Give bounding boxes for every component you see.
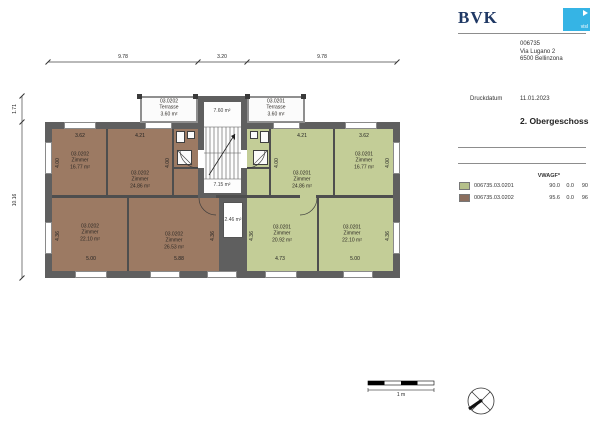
legend-divider-1 xyxy=(458,147,586,148)
badge-arrow-icon xyxy=(583,10,588,16)
window xyxy=(265,271,297,278)
sink-fixture xyxy=(250,131,258,139)
dim-label: 3.62 xyxy=(75,133,85,139)
partition-wall xyxy=(317,198,319,271)
room-area: 22.10 m² xyxy=(80,236,100,242)
door-opening xyxy=(198,150,204,168)
terrace-door xyxy=(273,122,300,129)
room-label-0202-zimmer4: 03.0202 Zimmer 26.53 m² xyxy=(164,232,184,251)
room-unit: 03.0201 xyxy=(293,171,311,177)
partition-wall xyxy=(216,195,247,198)
dim-label: 4.36 xyxy=(210,231,216,241)
room-unit: 03.0201 xyxy=(343,225,361,231)
legend-id: 006735.03.0202 xyxy=(474,195,514,201)
window xyxy=(45,222,52,254)
stair-core-interior xyxy=(204,102,241,193)
dim-label: 9.78 xyxy=(317,54,327,60)
room-area: 26.53 m² xyxy=(164,244,184,250)
window xyxy=(64,122,96,129)
partition-wall xyxy=(333,129,335,196)
dim-label: 5.00 xyxy=(86,256,96,262)
partition-wall xyxy=(127,198,129,271)
room-unit: 03.0201 xyxy=(267,99,285,105)
room-label-0202-zimmer2: 03.0202 Zimmer 24.86 m² xyxy=(130,171,150,190)
window xyxy=(150,271,180,278)
address-street: Via Lugano 2 xyxy=(520,49,563,57)
window xyxy=(343,271,373,278)
wc-fixture xyxy=(260,131,269,143)
dim-label: 1.71 xyxy=(12,104,18,114)
dim-label: 5.00 xyxy=(350,256,360,262)
dim-label: 9.78 xyxy=(118,54,128,60)
project-address: 006735 Via Lugano 2 6500 Bellinzona xyxy=(520,41,563,64)
room-area: 22.10 m² xyxy=(342,237,362,243)
dim-label: 4.21 xyxy=(297,133,307,139)
shaft-area-label: 2.46 m² xyxy=(225,217,242,223)
window xyxy=(45,142,52,174)
dim-label: 4.36 xyxy=(385,231,391,241)
room-area: 3.60 m² xyxy=(161,111,178,117)
room-label-0202-zimmer3: 03.0202 Zimmer 22.10 m² xyxy=(80,224,100,243)
room-unit: 03.0202 xyxy=(71,152,89,158)
partition-wall xyxy=(174,167,198,169)
legend-value-3: 90 xyxy=(576,183,588,189)
room-unit: 03.0202 xyxy=(81,224,99,230)
legend-divider-2 xyxy=(458,163,586,164)
partition-wall xyxy=(269,129,271,196)
scale-bar-label: 1 m xyxy=(397,392,405,398)
room-unit: 03.0201 xyxy=(273,225,291,231)
floor-title: 2. Obergeschoss xyxy=(520,116,589,126)
dim-label: 4.00 xyxy=(165,158,171,168)
dim-label: 4.00 xyxy=(385,158,391,168)
room-type: Zimmer xyxy=(344,231,361,237)
room-type: Zimmer xyxy=(72,158,89,164)
door-opening xyxy=(241,150,247,168)
room-area: 24.86 m² xyxy=(130,183,150,189)
floorplan-sheet: 9.78 3.20 9.78 1.71 10.16 3.62 4.21 4.21… xyxy=(0,0,600,422)
dim-label: 4.21 xyxy=(135,133,145,139)
address-city: 6500 Bellinzona xyxy=(520,56,563,64)
room-area: 20.92 m² xyxy=(272,237,292,243)
room-type: Zimmer xyxy=(82,230,99,236)
dim-label: 4.36 xyxy=(249,231,255,241)
legend-row-0202: 006735.03.0202 95.6 0.0 96 xyxy=(459,194,589,203)
dim-label: 4.73 xyxy=(275,256,285,262)
shower-fixture xyxy=(177,150,192,165)
legend-value-3: 96 xyxy=(576,195,588,201)
badge-text: visl xyxy=(581,24,588,30)
room-type: Zimmer xyxy=(132,177,149,183)
window xyxy=(345,122,377,129)
window xyxy=(393,142,400,174)
legend-row-0201: 006735.03.0201 90.0 0.0 90 xyxy=(459,182,589,191)
room-area: 16.77 m² xyxy=(354,164,374,170)
partition-wall xyxy=(106,129,108,196)
legend-swatch-green xyxy=(459,182,470,190)
room-label-0201-zimmer2: 03.0201 Zimmer 16.77 m² xyxy=(354,152,374,171)
railing-post xyxy=(245,94,250,99)
partition-wall xyxy=(316,195,393,198)
brand-badge: visl xyxy=(563,8,590,31)
room-type: Terrasse xyxy=(159,105,178,111)
room-label-0201-zimmer1: 03.0201 Zimmer 24.86 m² xyxy=(292,171,312,190)
dim-label: 5.88 xyxy=(174,256,184,262)
room-area: 24.86 m² xyxy=(292,183,312,189)
room-area: 3.60 m² xyxy=(268,111,285,117)
legend-id: 006735.03.0201 xyxy=(474,183,514,189)
legend-value-1: 95.6 xyxy=(530,195,560,201)
dim-label: 4.00 xyxy=(55,158,61,168)
print-date-label: Druckdatum xyxy=(470,96,502,102)
room-label-0201-zimmer4: 03.0201 Zimmer 22.10 m² xyxy=(342,225,362,244)
railing-post xyxy=(301,94,306,99)
dim-label: 4.00 xyxy=(274,158,280,168)
project-number: 006735 xyxy=(520,41,563,49)
legend-swatch-brown xyxy=(459,194,470,202)
room-label-0202-terrasse: 03.0202 Terrasse 3.60 m² xyxy=(159,99,178,118)
core-hall-area-label: 7.15 m² xyxy=(214,182,231,188)
legend-value-2: 0.0 xyxy=(562,195,574,201)
room-unit: 03.0202 xyxy=(165,232,183,238)
room-area: 16.77 m² xyxy=(70,164,90,170)
partition-wall xyxy=(172,129,174,196)
room-unit: 03.0201 xyxy=(355,152,373,158)
sink-fixture xyxy=(187,131,195,139)
room-type: Zimmer xyxy=(166,238,183,244)
legend-value-2: 0.0 xyxy=(562,183,574,189)
terrace-door xyxy=(145,122,172,129)
legend-value-1: 90.0 xyxy=(530,183,560,189)
room-type: Terrasse xyxy=(266,105,285,111)
room-type: Zimmer xyxy=(274,231,291,237)
room-unit: 03.0202 xyxy=(160,99,178,105)
room-label-0201-zimmer3: 03.0201 Zimmer 20.92 m² xyxy=(272,225,292,244)
room-type: Zimmer xyxy=(294,177,311,183)
room-unit: 03.0202 xyxy=(131,171,149,177)
railing-post xyxy=(193,94,198,99)
legend-column-header: VWAGF* xyxy=(500,173,560,179)
wc-fixture xyxy=(176,131,185,143)
partition-wall xyxy=(247,167,271,169)
titleblock-divider xyxy=(458,33,586,34)
room-label-0202-zimmer1: 03.0202 Zimmer 16.77 m² xyxy=(70,152,90,171)
print-date-value: 11.01.2023 xyxy=(520,96,550,102)
room-type: Zimmer xyxy=(356,158,373,164)
window xyxy=(207,271,237,278)
shower-fixture xyxy=(253,150,268,165)
partition-wall xyxy=(247,195,300,198)
dim-label: 10.16 xyxy=(12,194,18,207)
window xyxy=(75,271,107,278)
dim-label: 3.62 xyxy=(359,133,369,139)
room-label-0201-terrasse: 03.0201 Terrasse 3.60 m² xyxy=(266,99,285,118)
bvk-logo: BVK xyxy=(458,8,498,28)
dim-label: 4.36 xyxy=(55,231,61,241)
core-top-area-label: 7.60 m² xyxy=(214,108,231,114)
dim-label: 3.20 xyxy=(217,54,227,60)
railing-post xyxy=(137,94,142,99)
partition-wall xyxy=(52,195,198,198)
window xyxy=(393,222,400,254)
